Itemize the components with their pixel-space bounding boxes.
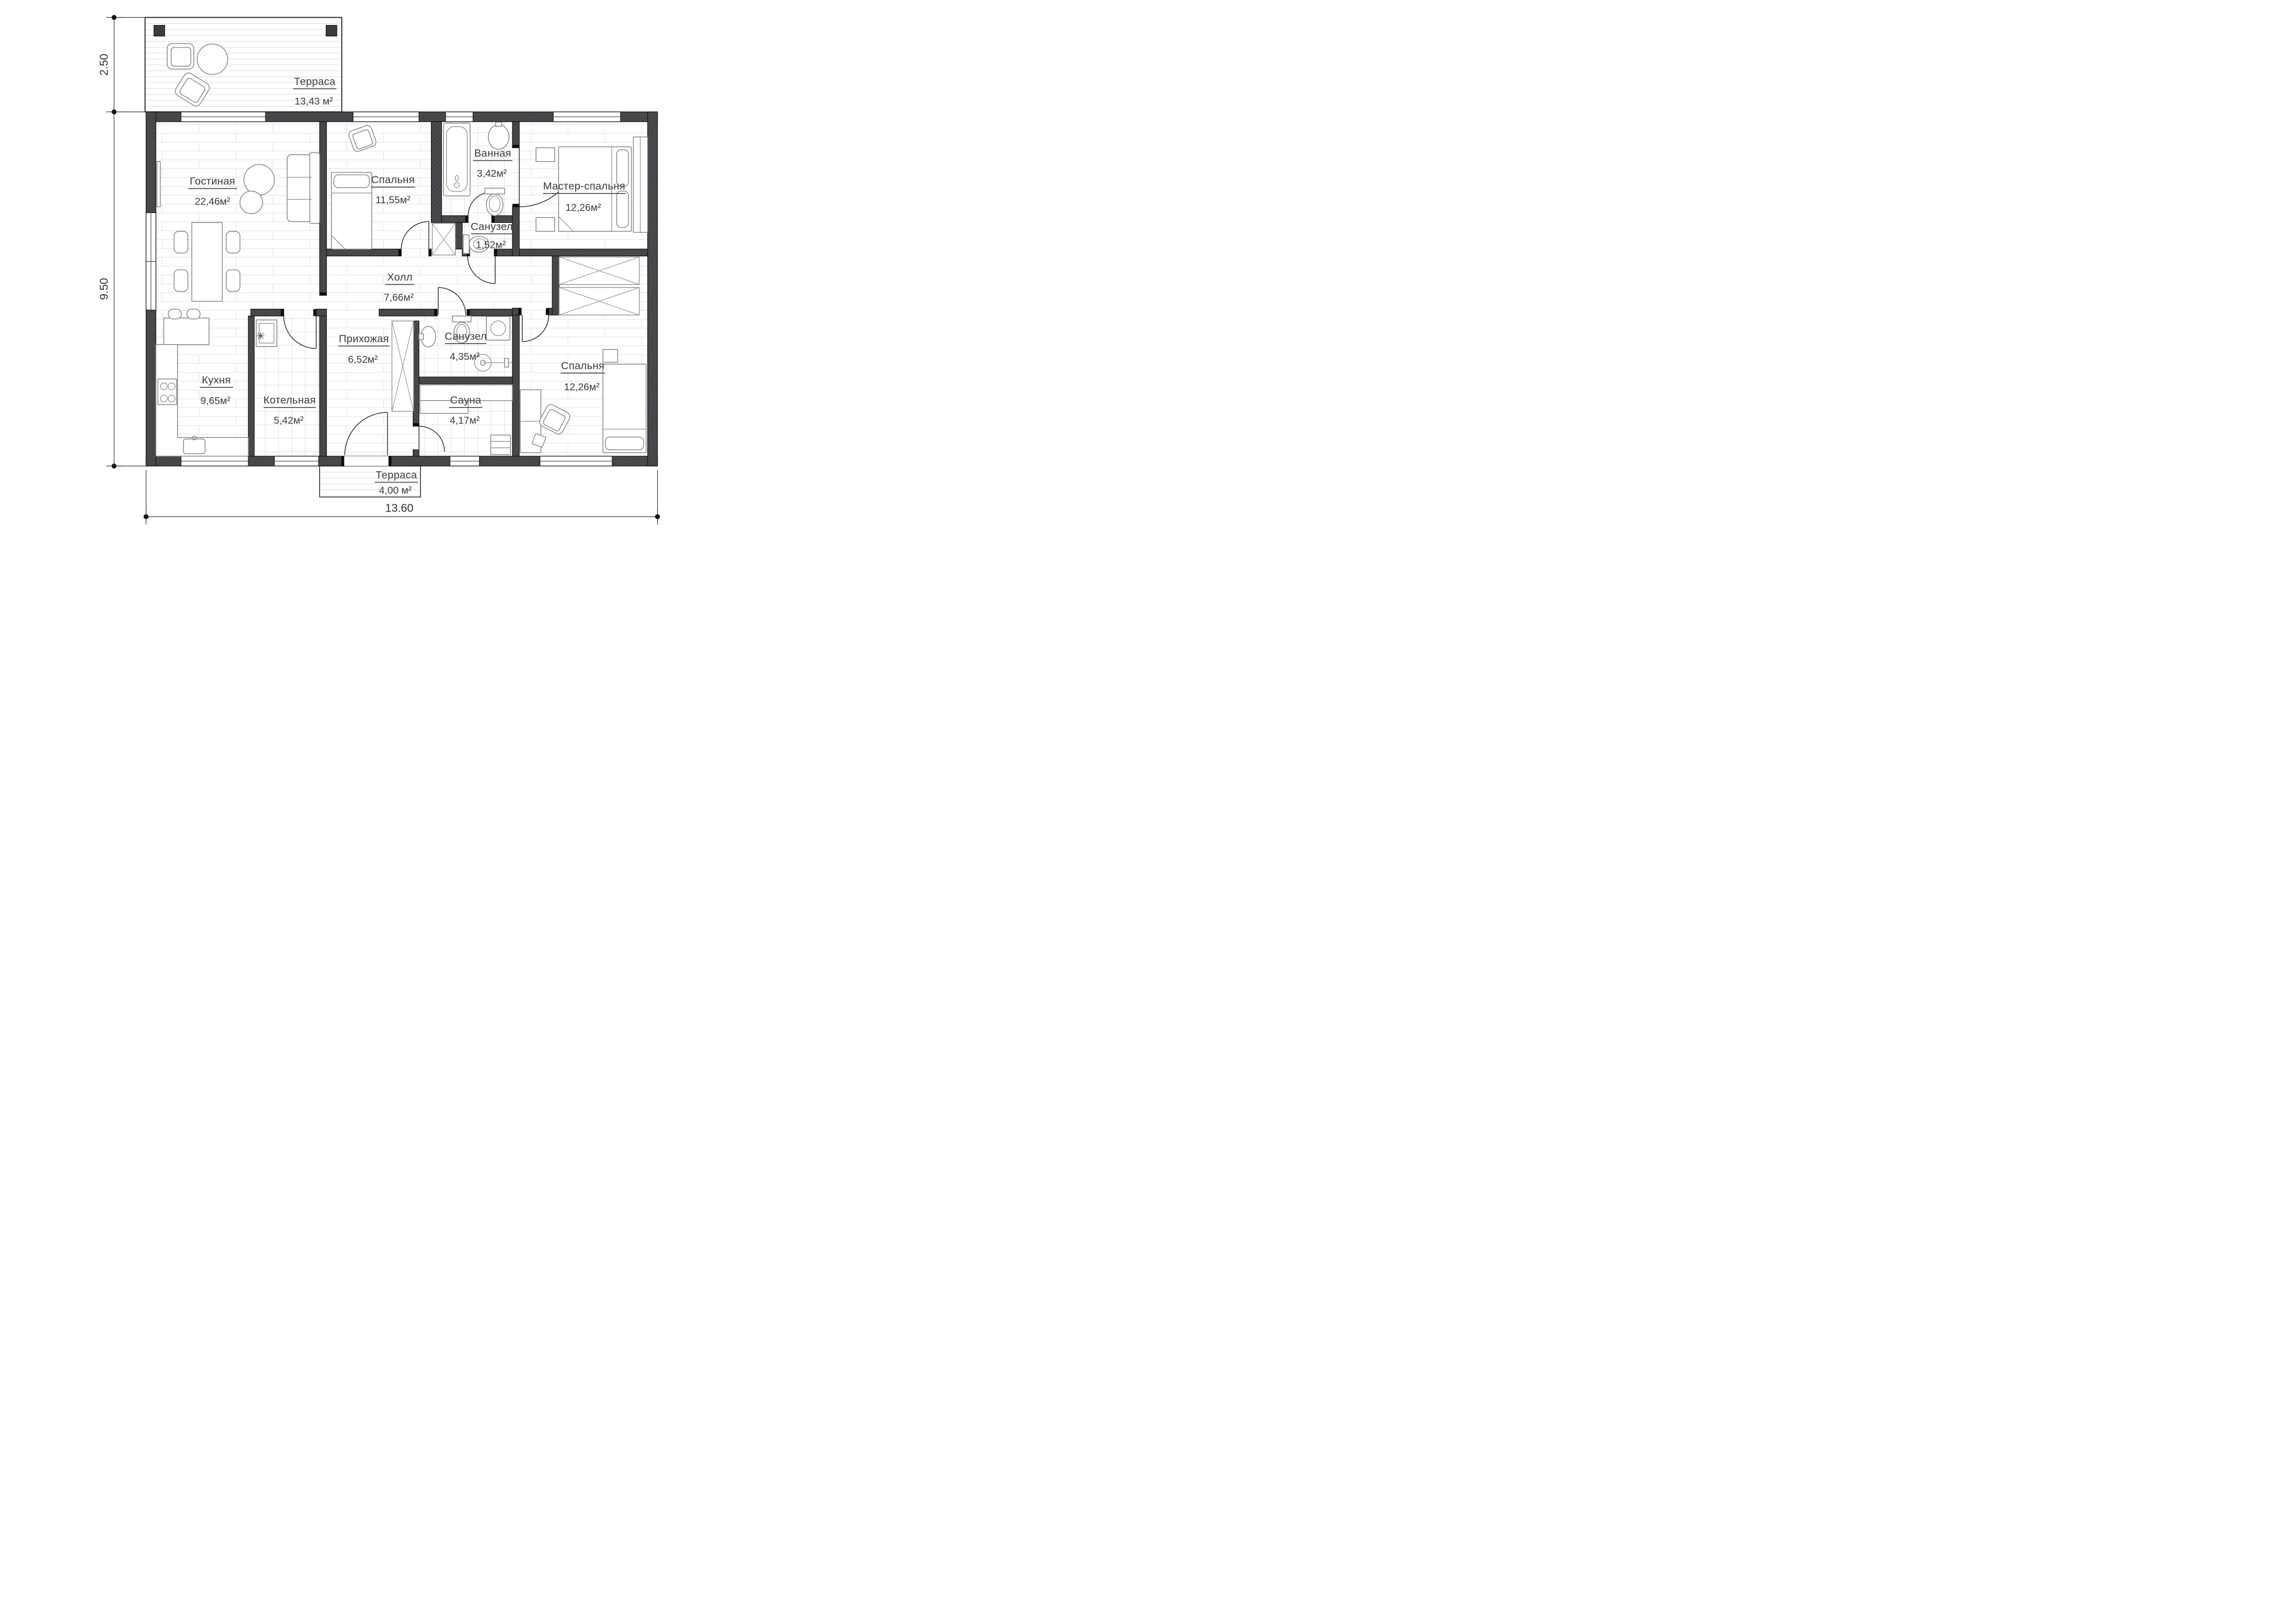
window (450, 456, 480, 466)
wall-entry-right (413, 450, 419, 456)
room-area: 6,52м² (348, 354, 378, 365)
wall-kitchen-boiler (248, 316, 254, 457)
sauna-heater (491, 435, 510, 455)
dining-chair (174, 231, 188, 253)
room-label: Кухня (202, 374, 231, 386)
room-label: Сауна (450, 394, 481, 406)
dimension-house-height: 9.50 (97, 278, 110, 300)
room-area: 22,46м² (195, 196, 230, 207)
window (446, 112, 473, 122)
wardrobe-x (559, 288, 639, 315)
dimension-house-width: 13.60 (385, 501, 414, 514)
side-table (244, 164, 274, 195)
dining-chair (226, 231, 240, 253)
window (181, 112, 266, 122)
kitchen-sink (184, 439, 205, 454)
room-area: 4,00 м² (379, 485, 412, 496)
wall-exterior-right (648, 112, 658, 466)
nightstand (536, 217, 555, 231)
room-label: Санузел (471, 220, 513, 232)
room-label: Спальня (561, 360, 605, 372)
room-label: Холл (387, 271, 413, 283)
room-label: Котельная (264, 394, 316, 406)
room-label: Мастер-спальня (543, 180, 625, 192)
room-area: 4,17м² (450, 415, 480, 426)
toilet (485, 188, 505, 216)
room-label: Терраса (294, 76, 336, 87)
dimension-terrace-height: 2.50 (97, 54, 110, 76)
terrace-post (326, 26, 337, 36)
dining-chair (226, 270, 240, 291)
closet-x (392, 321, 414, 411)
floor-plan-page: ✳ (0, 0, 765, 541)
wall-living-hall (320, 122, 326, 296)
window (146, 213, 156, 310)
bed (603, 350, 646, 453)
wall-sauna-bedroom2 (512, 315, 519, 457)
wall-hall-wardrobe (552, 256, 559, 315)
room-area: 4,35м² (450, 351, 480, 362)
room-area: 12,26м² (564, 381, 599, 393)
room-area: 3,42м² (477, 168, 507, 179)
boiler: ✳ (256, 320, 277, 347)
dining-chair (174, 270, 188, 291)
wardrobe (633, 137, 647, 232)
wall-master-left (512, 122, 519, 148)
terrace-post (154, 26, 165, 36)
room-label: Терраса (375, 469, 417, 481)
room-label: Санузел (445, 330, 487, 342)
wall-hall-bottom (379, 309, 437, 316)
room-area: 7,66м² (384, 292, 414, 303)
room-area: 1,52м² (476, 239, 506, 250)
window (553, 112, 620, 122)
entrance-opening (344, 456, 388, 466)
wall-boiler-top (251, 309, 284, 316)
wall-boiler-top (316, 309, 326, 316)
bed (331, 172, 372, 249)
pillow (334, 175, 369, 188)
wall-wc2-sauna (419, 377, 512, 384)
wall-bath-bottom (442, 216, 468, 222)
wall-bedroom-hall (326, 249, 401, 256)
pillow (616, 191, 628, 227)
ventilation-symbol: ✳ (256, 330, 265, 342)
room-label: Гостиная (189, 175, 235, 187)
room-area: 13,43 м² (294, 96, 333, 107)
wall-bedroom2-top (549, 308, 552, 315)
washing-machine (486, 317, 510, 340)
pillow (605, 437, 643, 450)
terrace-armchair (167, 44, 194, 69)
wall-master-left (512, 207, 519, 256)
wall-bedroom-bath (431, 122, 442, 222)
bar-stool (187, 309, 200, 319)
terrace-round-table (197, 44, 228, 75)
room-area: 5,42м² (274, 415, 304, 426)
room-label: Спальня (371, 174, 415, 186)
room-area: 12,26м² (565, 202, 601, 213)
shaft-x (432, 223, 455, 255)
room-label: Ванная (474, 147, 511, 159)
window (274, 456, 319, 466)
wall-entry-right (413, 321, 419, 426)
bar-stool (168, 309, 182, 319)
wall-boiler-entry (320, 316, 326, 457)
wardrobe-x (559, 257, 639, 284)
wall-wc-left (455, 222, 462, 249)
window (353, 112, 419, 122)
tv-panel (157, 162, 160, 207)
room-label: Прихожая (339, 333, 389, 345)
floor-plan: ✳ (0, 0, 765, 541)
wall-wc2-top (470, 309, 512, 316)
window (181, 456, 248, 466)
nightstand (603, 350, 617, 362)
bathtub (444, 123, 470, 196)
side-table (240, 191, 263, 214)
window (540, 456, 612, 466)
room-area: 11,55м² (375, 194, 410, 206)
room-area: 9,65м² (200, 395, 230, 406)
wall-master-bottom (519, 249, 648, 256)
nightstand (536, 148, 555, 162)
sofa (287, 153, 320, 223)
